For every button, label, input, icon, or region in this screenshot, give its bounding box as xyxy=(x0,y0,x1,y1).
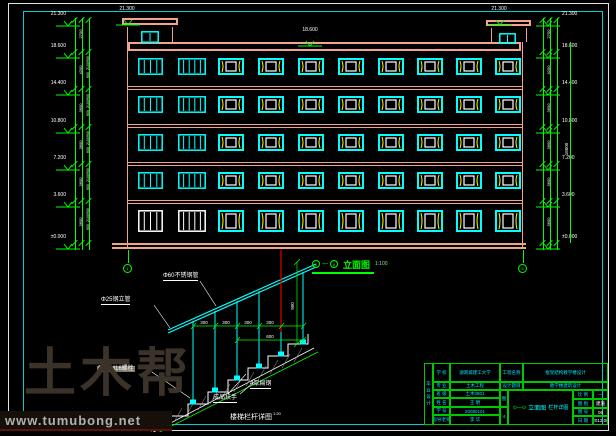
casement-window xyxy=(218,134,244,151)
level-value-right: 10.800 xyxy=(562,118,594,124)
titleblock-row-value: 湖南城建工大学 xyxy=(450,363,500,382)
window-dim: 600 xyxy=(86,222,90,230)
strip-window xyxy=(138,134,163,151)
axis-start-bubble: 1 xyxy=(312,260,320,268)
floor-dim-right: 3600 xyxy=(546,173,551,191)
cad-canvas: 300 300 300 300 600 900 xyxy=(0,0,616,436)
detail-title-text: 楼梯栏杆详图 xyxy=(230,414,272,421)
titleblock-row-label: 学 号 xyxy=(433,407,450,415)
level-marker-left xyxy=(56,121,80,128)
level-marker-left xyxy=(56,14,80,21)
level-marker-left xyxy=(56,46,80,53)
window-dim: 600 xyxy=(86,70,90,78)
window-dim: 2100 xyxy=(86,174,90,182)
penthouse-window-left xyxy=(141,30,159,42)
strip-window xyxy=(178,58,206,75)
titleblock-row-value: 王 明 xyxy=(450,398,500,407)
strip-window xyxy=(178,210,206,232)
casement-window xyxy=(298,134,324,151)
titleblock-meta-value: 2012.06 xyxy=(593,416,608,425)
casement-window xyxy=(417,210,443,232)
wall-right xyxy=(522,42,523,247)
titleblock-project-value: 框架结构教学楼设计 xyxy=(523,363,608,382)
casement-window xyxy=(258,134,284,151)
window-dim: 2100 xyxy=(86,62,90,70)
casement-window xyxy=(338,58,364,75)
casement-window xyxy=(378,210,404,232)
watermark-url: www.tumubong.net xyxy=(0,413,141,428)
casement-window xyxy=(338,172,364,189)
flat-steel-label: 4厚扁钢 xyxy=(250,378,271,389)
level-marker-right xyxy=(536,83,560,90)
titleblock-meta-value: 06 xyxy=(593,408,608,416)
titleblock-row-label: 专 业 xyxy=(433,382,450,390)
titleblock-meta-value: 建施 xyxy=(593,399,608,408)
level-value-right: 18.600 xyxy=(562,43,594,49)
level-marker-left xyxy=(56,83,80,90)
floor-dim-left: 3600 xyxy=(78,173,83,191)
casement-window xyxy=(456,96,482,113)
finished-handrail-label: 成品扶手 xyxy=(213,392,237,403)
overall-dim-line xyxy=(570,42,571,243)
handrail-pipe-label: Φ60不锈钢管 xyxy=(163,270,198,281)
casement-window xyxy=(456,58,482,75)
titleblock-drawing-name2: 栏杆详图 xyxy=(548,404,568,411)
roof-level-text: 18.600 xyxy=(296,27,324,33)
titleblock-sheet-char: 图 xyxy=(500,390,508,407)
level-marker-right xyxy=(536,46,560,53)
titleblock-meta-label: 日 期 xyxy=(573,416,593,425)
casement-window xyxy=(298,210,324,232)
titleblock-subject-label: 设计题目 xyxy=(500,382,523,390)
casement-window xyxy=(258,96,284,113)
elevation-title: 立面图 xyxy=(343,258,370,271)
roof-level-marker xyxy=(298,34,322,41)
bulkhead-level-right: 21.300 xyxy=(484,6,514,12)
floor-dim-right: 3600 xyxy=(546,99,551,117)
wall-left xyxy=(127,42,128,247)
titleblock-row-value: 20080101 xyxy=(450,407,500,415)
axis-line-right xyxy=(523,250,524,263)
titleblock-drawing-name: 立面图 xyxy=(528,403,546,412)
titleblock-row-label: 班 级 xyxy=(433,390,450,398)
penthouse-window-right xyxy=(499,31,516,42)
window-dim: 2100 xyxy=(86,214,90,222)
titleblock-drawing-axis: ⊙—⊙ xyxy=(513,405,526,411)
bulkhead-marker-right xyxy=(488,13,512,20)
casement-window xyxy=(417,172,443,189)
window-dim: 900 xyxy=(86,166,90,174)
axis-end-bubble: 8 xyxy=(330,260,338,268)
casement-window xyxy=(378,172,404,189)
level-value-right: 3.600 xyxy=(562,192,594,198)
window-dim: 900 xyxy=(86,206,90,214)
floor-band xyxy=(128,162,523,166)
casement-window xyxy=(338,96,364,113)
floor-dim-right: 3600 xyxy=(546,213,551,231)
post-pipe-label: Φ25钢立管 xyxy=(101,294,130,305)
titleblock-meta-label: 图 号 xyxy=(573,408,593,416)
watermark-url-band: www.tumubong.net xyxy=(0,411,172,429)
floor-dim-left: 2700 xyxy=(78,25,83,43)
svg-text:300: 300 xyxy=(222,320,230,325)
titleblock-row-label: 姓 名 xyxy=(433,398,450,407)
level-marker-left xyxy=(56,195,80,202)
floor-band xyxy=(128,86,523,90)
watermark-brand: 土木帮 xyxy=(24,348,192,400)
casement-window xyxy=(378,134,404,151)
titleblock-project-label: 工程名称 xyxy=(500,363,523,382)
casement-window xyxy=(456,210,482,232)
svg-text:300: 300 xyxy=(244,320,252,325)
level-marker-right xyxy=(536,237,560,244)
level-marker-right xyxy=(536,195,560,202)
railing-posts xyxy=(191,272,306,404)
level-value-right: ±0.000 xyxy=(562,234,594,240)
level-marker-right xyxy=(536,14,560,21)
floor-dim-left: 3600 xyxy=(78,136,83,154)
elevation-scale: 1:100 xyxy=(375,261,388,267)
casement-window xyxy=(417,96,443,113)
axis-bubble-right: 8 xyxy=(518,264,527,273)
strip-window xyxy=(138,58,163,75)
level-value-right: 21.300 xyxy=(562,11,594,17)
casement-window xyxy=(456,172,482,189)
window-dim: 2100 xyxy=(86,137,90,145)
floor-band xyxy=(128,124,523,128)
floor-dim-left: 3600 xyxy=(78,99,83,117)
titleblock-meta-label: 比 例 xyxy=(573,390,593,399)
window-dim: 900 xyxy=(86,54,90,62)
casement-window xyxy=(495,172,521,189)
titleblock-row-label: 学 校 xyxy=(433,363,450,382)
casement-window xyxy=(378,96,404,113)
casement-window xyxy=(218,210,244,232)
casement-window xyxy=(298,96,324,113)
casement-window xyxy=(218,172,244,189)
window-dim: 600 xyxy=(86,145,90,153)
svg-text:300: 300 xyxy=(266,320,274,325)
casement-window xyxy=(456,134,482,151)
casement-window xyxy=(495,134,521,151)
casement-window xyxy=(298,58,324,75)
floor-dim-right: 2700 xyxy=(546,25,551,43)
bulkhead-level-left: 21.300 xyxy=(112,6,142,12)
titleblock-row-label: 指导老师 xyxy=(433,415,450,425)
detail-title-scale: 1:20 xyxy=(273,411,281,416)
casement-window xyxy=(378,58,404,75)
elevation-drawing-label: 1—8立面图1:100 xyxy=(312,258,388,270)
roof-band xyxy=(128,42,521,51)
floor-dim-right: 4200 xyxy=(546,61,551,79)
window-dim: 2100 xyxy=(86,100,90,108)
floor-dim-right: 3600 xyxy=(546,136,551,154)
detail-title: 楼梯栏杆详图1:20 xyxy=(230,406,281,424)
casement-window xyxy=(258,58,284,75)
detail-dimensions xyxy=(191,259,306,347)
strip-window xyxy=(178,96,206,113)
level-marker-left xyxy=(56,237,80,244)
titleblock-row-value: 土木工程 xyxy=(450,382,500,390)
titleblock-side-label: 毕业设计 xyxy=(424,363,433,425)
titleblock-row-value: 李 华 xyxy=(450,415,500,425)
titleblock-subject-value: 教学楼建筑设计 xyxy=(523,382,608,390)
casement-window xyxy=(258,210,284,232)
window-dim: 900 xyxy=(86,92,90,100)
titleblock-meta-label: 图 别 xyxy=(573,399,593,408)
titleblock-sheet-num: 4 xyxy=(500,407,508,425)
level-marker-left xyxy=(56,158,80,165)
axis-dash: — xyxy=(322,261,328,267)
casement-window xyxy=(338,210,364,232)
watermark-divider xyxy=(0,429,172,431)
overall-dim-text: 18600 xyxy=(564,138,569,160)
floor-band xyxy=(128,200,523,204)
casement-window xyxy=(258,172,284,189)
window-dim: 600 xyxy=(86,182,90,190)
level-marker-right xyxy=(536,158,560,165)
casement-window xyxy=(495,58,521,75)
strip-window xyxy=(138,172,163,189)
level-value-right: 14.400 xyxy=(562,80,594,86)
strip-window xyxy=(138,96,163,113)
casement-window xyxy=(338,134,364,151)
floor-dim-left: 3600 xyxy=(78,213,83,231)
floor-dim-left: 4200 xyxy=(78,61,83,79)
casement-window xyxy=(218,58,244,75)
svg-text:900: 900 xyxy=(290,302,295,310)
titleblock-drawing-title: ⊙—⊙立面图栏杆详图 xyxy=(508,390,573,425)
casement-window xyxy=(218,96,244,113)
svg-text:600: 600 xyxy=(266,334,274,339)
casement-window xyxy=(495,96,521,113)
window-dim: 900 xyxy=(86,129,90,137)
casement-window xyxy=(417,58,443,75)
level-marker-right xyxy=(536,121,560,128)
elevation-label-underline xyxy=(312,272,374,274)
bulkhead-marker-left xyxy=(116,13,140,20)
titleblock-row-value: 土木0801 xyxy=(450,390,500,398)
strip-window xyxy=(138,210,163,232)
casement-window xyxy=(417,134,443,151)
window-dim: 600 xyxy=(86,108,90,116)
titleblock-meta-value: — xyxy=(593,390,608,399)
casement-window xyxy=(495,210,521,232)
strip-window xyxy=(178,172,206,189)
svg-text:300: 300 xyxy=(200,320,208,325)
strip-window xyxy=(178,134,206,151)
stair-railing-detail: 300 300 300 300 600 900 xyxy=(92,248,332,432)
casement-window xyxy=(298,172,324,189)
